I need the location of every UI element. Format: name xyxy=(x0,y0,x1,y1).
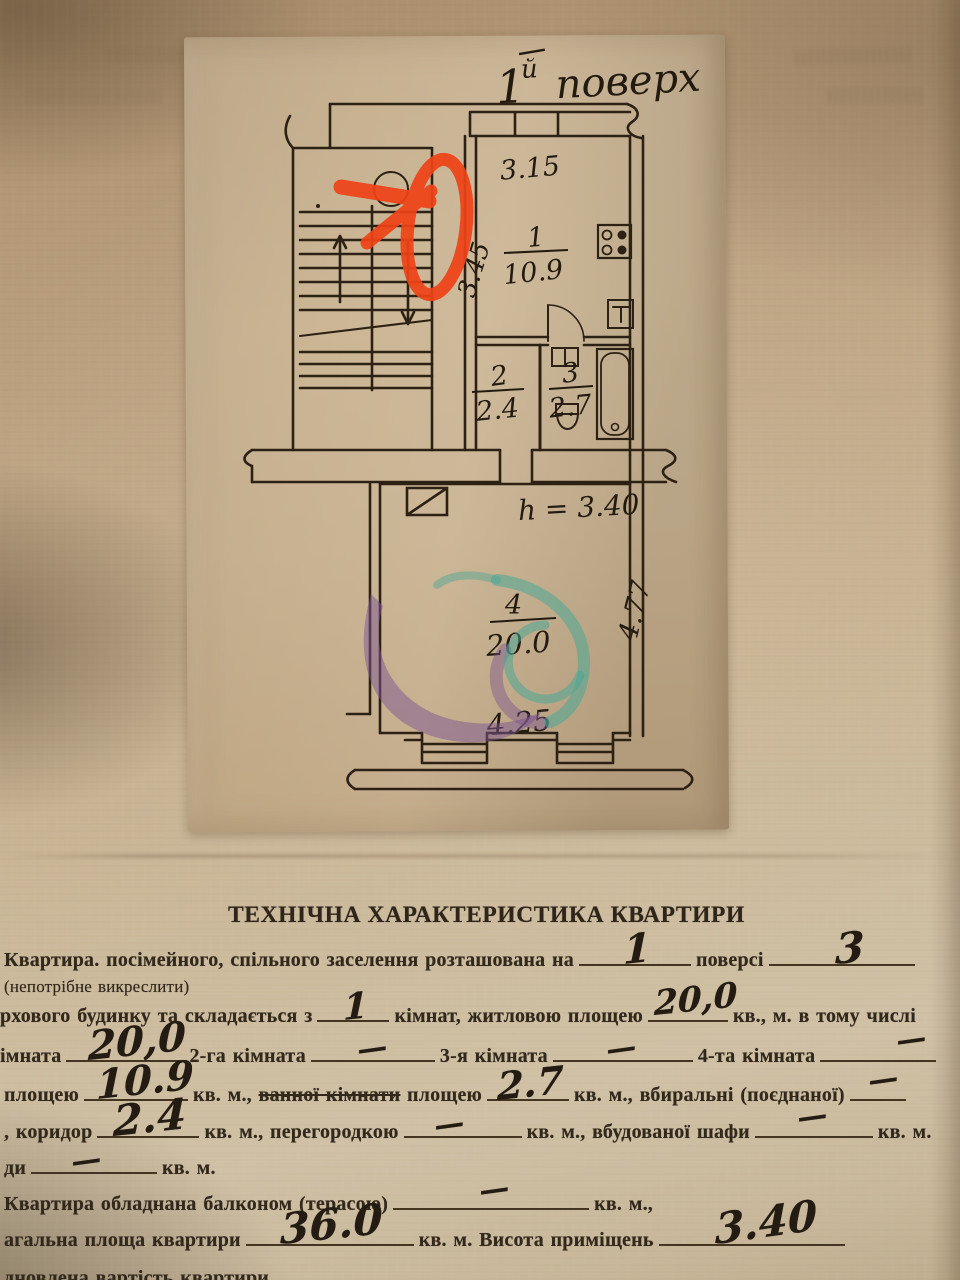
form-blank: 1 xyxy=(317,1017,389,1022)
scanned-technical-passport-photo: 1 й поверх 3.15 3.45 1 10.9 2 2.4 3 2.7 … xyxy=(0,0,960,1280)
showthrough-smudge xyxy=(795,46,913,66)
handwritten-dash: — xyxy=(432,1111,465,1139)
form-blank: — xyxy=(393,1205,589,1210)
handwritten-dash: — xyxy=(478,1176,511,1204)
form-text: кімнат, житловою площею xyxy=(394,1005,642,1027)
form-text: дновлена вартість квартири xyxy=(4,1267,269,1280)
handwritten-bath-area: 2.7 xyxy=(497,1064,564,1102)
form-text: агальна площа квартири xyxy=(4,1229,241,1251)
handwritten-dash: — xyxy=(70,1147,103,1175)
handwritten-dash: — xyxy=(356,1035,389,1063)
form-text: кв. м., xyxy=(594,1193,653,1215)
paper-right-edge-shadow xyxy=(930,0,960,1280)
form-line-floor: Квартира. посімейного, спільного заселен… xyxy=(4,948,920,973)
form-text: , коридор xyxy=(4,1121,92,1143)
handwritten-floor: 1 xyxy=(623,932,651,967)
form-line-corridor: , коридор2.4кв. м., перегородкою—кв. м.,… xyxy=(4,1120,932,1145)
form-blank: — xyxy=(850,1096,906,1101)
form-text: кв., м. в тому числі xyxy=(733,1005,916,1027)
form-blank: — xyxy=(31,1169,157,1174)
floor-plan-sheet xyxy=(184,35,729,833)
showthrough-smudge xyxy=(25,90,163,104)
paper-crease xyxy=(0,854,960,858)
form-line-misc: ди—кв. м. xyxy=(4,1156,216,1181)
form-blank: — xyxy=(553,1057,693,1062)
form-text: площею xyxy=(4,1084,79,1106)
handwritten-storeys: 3 xyxy=(835,930,865,967)
form-text: 4-та кімната xyxy=(698,1045,815,1067)
handwritten-ceiling-height: 3.40 xyxy=(715,1199,817,1247)
handwritten-dash: — xyxy=(605,1035,638,1063)
showthrough-smudge xyxy=(108,48,186,62)
form-title: ТЕХНІЧНА ХАРАКТЕРИСТИКА КВАРТИРИ xyxy=(228,901,680,929)
form-line-value: дновлена вартість квартири xyxy=(4,1266,269,1280)
form-blank: 20,0 xyxy=(648,1017,728,1022)
form-blank: 1 xyxy=(579,961,691,966)
handwritten-total-area: 36.0 xyxy=(280,1202,383,1247)
form-text: Квартира. посімейного, спільного заселен… xyxy=(4,949,574,971)
form-text: 2-га кімната xyxy=(189,1045,305,1067)
handwritten-rooms-count: 1 xyxy=(343,991,369,1023)
handwritten-dash: — xyxy=(866,1066,899,1094)
form-blank: 2.7 xyxy=(487,1096,569,1101)
form-text: імната xyxy=(0,1045,61,1067)
handwritten-corridor-area: 2.4 xyxy=(113,1097,187,1139)
form-text-struck: ванної кімнати xyxy=(259,1084,401,1106)
form-text: ди xyxy=(4,1157,26,1179)
form-blank: 36.0 xyxy=(246,1241,414,1246)
form-text: кв. м., перегородкою xyxy=(204,1121,398,1143)
handwritten-living-area: 20,0 xyxy=(654,982,738,1018)
form-text: кв. м. xyxy=(878,1121,932,1143)
handwritten-dash: — xyxy=(796,1103,829,1131)
handwritten-dash: — xyxy=(895,1026,928,1054)
form-text: кв. м. Висота приміщень xyxy=(419,1229,654,1251)
form-blank: 2.4 xyxy=(97,1133,199,1138)
form-text: кв. м., вбудованої шафи xyxy=(527,1121,750,1143)
form-line-total-area: агальна площа квартири36.0кв. м. Висота … xyxy=(4,1228,850,1253)
form-text: поверсі xyxy=(696,949,764,971)
form-text: площею xyxy=(407,1084,482,1106)
form-blank: 3 xyxy=(769,961,915,966)
form-blank: — xyxy=(311,1057,435,1062)
form-text: кв. м. xyxy=(162,1157,216,1179)
form-blank: — xyxy=(820,1057,936,1062)
form-note: (непотрібне викреслити) xyxy=(4,977,189,997)
form-blank: — xyxy=(404,1133,522,1138)
form-text: кв. м., xyxy=(193,1084,252,1106)
form-blank: — xyxy=(755,1133,873,1138)
form-blank: 3.40 xyxy=(659,1241,845,1246)
showthrough-smudge xyxy=(828,88,924,103)
